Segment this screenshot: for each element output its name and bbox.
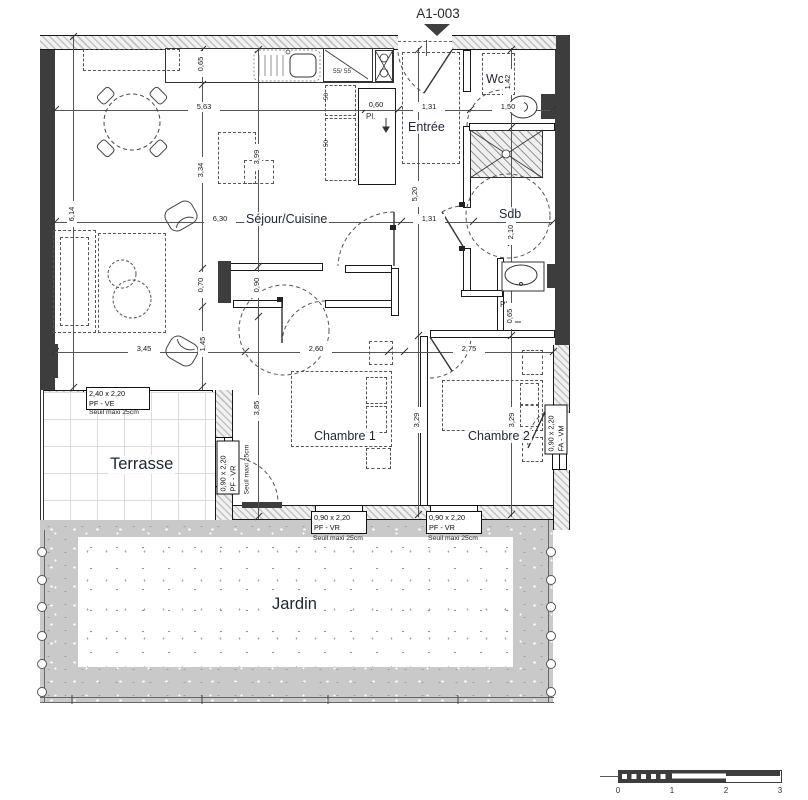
- ch1-south-window-label: 0,90 x 2,20 PF - VR: [311, 511, 367, 534]
- ch1-south-window-note: Seuil maxi 25cm: [313, 535, 363, 542]
- room-label-chambre1: Chambre 1: [312, 429, 378, 443]
- scale-bar-leader: [600, 776, 618, 777]
- coffee-tables: [108, 260, 151, 318]
- placard-kitchen-label: Pl.: [366, 112, 375, 121]
- fence-posts: [38, 548, 556, 705]
- scale-1: 1: [667, 786, 677, 795]
- dim-k2-h: 3,99: [252, 144, 262, 170]
- ch1s-size: 0,90 x 2,20: [314, 513, 364, 523]
- floorplan-page: A1-003 55/ 55 50 50: [0, 0, 808, 800]
- room-label-jardin: Jardin: [270, 595, 319, 614]
- dim-kitchen-closet: 0,60: [360, 100, 392, 110]
- ch2s-size: 0,90 x 2,20: [429, 513, 479, 523]
- bay-type: PF - VE: [89, 399, 147, 409]
- dim-entree-w2: 1,31: [413, 214, 445, 224]
- scale-segment-3: [726, 771, 780, 782]
- scale-0: 0: [613, 786, 623, 795]
- dim-k-depth: 0,65: [196, 51, 206, 77]
- ch2-east-window-label: 0,90 x 2,20 FA - VM: [545, 405, 568, 455]
- fridge-door-line: [325, 50, 368, 79]
- dim-pl-d: 0,65: [505, 303, 515, 329]
- ch2-south-window-label: 0,90 x 2,20 PF - VR: [426, 511, 482, 534]
- scale-segment-2: [672, 771, 726, 782]
- ch2-south-window-note: Seuil maxi 25cm: [428, 535, 478, 542]
- dim-left-h: 6,14: [67, 201, 77, 227]
- dim-w-total: 5,63: [188, 102, 220, 112]
- bay-size: 2,40 x 2,20: [89, 389, 147, 399]
- dining-set: [96, 86, 168, 158]
- dim-ch1-h2: 3,29: [412, 407, 422, 433]
- scale-3: 3: [775, 786, 785, 795]
- ch2s-type: PF - VR: [429, 523, 479, 533]
- scale-bar: [618, 770, 782, 783]
- hob-details: [375, 50, 393, 82]
- dim-corr-h: 5,20: [410, 181, 420, 207]
- dim-sejour-s: 3,45: [128, 344, 160, 354]
- dim-sej-s2: 1,45: [198, 331, 208, 357]
- room-label-chambre2: Chambre 2: [466, 429, 532, 443]
- dim-ch2-w: 2,75: [453, 344, 485, 354]
- dim-ch1-h: 3,85: [252, 395, 262, 421]
- dim-wc-w: 1,50: [492, 102, 524, 112]
- ch1-west-window-note: Seuil maxi 25cm: [244, 439, 251, 495]
- scale-segment-1: [619, 771, 672, 782]
- dim-sej-s1: 0,70: [196, 272, 206, 298]
- dim-wc-h: 1,42: [503, 69, 513, 95]
- sink-drainer: [254, 50, 320, 81]
- room-label-sejour: Séjour/Cuisine: [244, 212, 329, 226]
- dim-pass: 0,90: [252, 272, 262, 298]
- dim-sejour-w: 6,30: [204, 214, 236, 224]
- room-label-entree: Entrée: [406, 120, 447, 134]
- washbasin: [502, 262, 544, 291]
- room-label-terrasse: Terrasse: [108, 455, 175, 474]
- dim-ch2-h: 3,29: [507, 407, 517, 433]
- dim-ch1-w: 2,60: [300, 344, 332, 354]
- scale-2: 2: [721, 786, 731, 795]
- ch1w-size: 0,90 x 2,20: [219, 444, 229, 492]
- bay-window-note: Seuil maxi 25cm: [89, 409, 139, 416]
- ch1w-type: PF - VR: [228, 444, 238, 492]
- dim-sdb-h: 2,10: [506, 219, 516, 245]
- dim-sejour-h: 3,34: [196, 157, 206, 183]
- ch1s-type: PF - VR: [314, 523, 364, 533]
- dimension-ticks: [52, 33, 557, 520]
- ch1-west-window-label: 0,90 x 2,20 PF - VR: [217, 441, 240, 495]
- bay-window-label: 2,40 x 2,20 PF - VE: [86, 387, 150, 410]
- dim-entree-w: 1,31: [413, 102, 445, 112]
- closet-arrows: [383, 118, 521, 325]
- shower-details: [470, 130, 543, 178]
- ch2e-size: 0,90 x 2,20: [547, 408, 557, 452]
- ch2e-type: FA - VM: [556, 408, 566, 452]
